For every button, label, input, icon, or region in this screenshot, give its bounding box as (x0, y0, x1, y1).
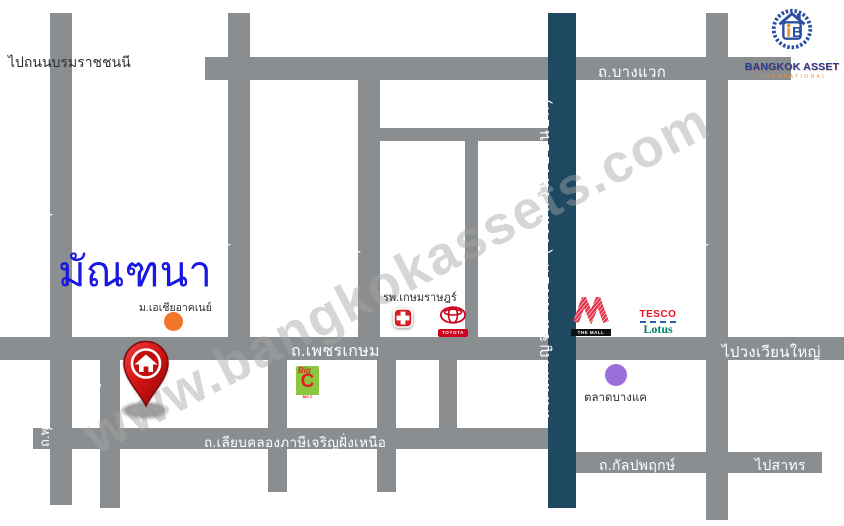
label-phutthasakhon: ถ.พุทธสาคร (37, 380, 53, 447)
label-to-wongwian-yai: ไปวงเวียนใหญ่ (722, 340, 821, 364)
lotus-label: Lotus (638, 323, 678, 335)
company-name: BANGKOK ASSET (744, 61, 840, 73)
university-marker (164, 312, 183, 331)
label-bangwaek: ถ.บางแวก (598, 60, 666, 84)
toyota-emblem-icon (439, 306, 467, 324)
road-sai1 (706, 13, 728, 520)
label-sai4: ถ.พุทธมณฑลสาย 4 (37, 123, 53, 233)
label-sai1: ถ.พุทธมณฑลสาย 1 (693, 153, 709, 263)
svg-text:B: B (792, 25, 802, 41)
company-logo: B BANGKOK ASSET INTERNATIONAL (744, 6, 840, 80)
road-soi-a (268, 360, 287, 492)
road-soi-c (439, 360, 457, 448)
location-map: www.bangkokassets.com ถ.บางแวก ถ.เพชรเกษ… (0, 0, 844, 526)
project-name: มัณฑนา (58, 248, 212, 296)
toyota-label: TOYOTA (438, 329, 468, 337)
label-liap-khlong: ถ.เลียบคลองภาษีเจริญฝั่งเหนือ (204, 431, 386, 453)
label-kanchanaphisek: ถนนกาญจนาภิเษก (วงแหวนรอบนอก) (536, 96, 553, 419)
road-soi-b (377, 360, 396, 492)
label-market: ตลาดบางแค (584, 389, 647, 407)
label-soi-macharoen: ซ.มาเจริญ 81 (91, 369, 103, 428)
big-c-strip-label: BIG C (296, 395, 319, 400)
toyota-logo: TOYOTA (438, 306, 468, 337)
the-mall-logo: THE MALL (571, 297, 611, 336)
the-mall-label: THE MALL (571, 329, 611, 336)
hospital-cross-icon (393, 308, 413, 333)
road-branch-north (368, 128, 550, 141)
label-hospital: รพ.เกษมราษฎร์ (383, 288, 457, 306)
company-emblem-icon: B (765, 6, 819, 56)
the-mall-m-icon (572, 297, 610, 324)
label-to-sathorn: ไปสาทร (755, 455, 806, 477)
tesco-lotus-logo: TESCO Lotus (638, 305, 678, 335)
market-marker (605, 364, 627, 386)
location-pin-icon (115, 340, 177, 425)
company-subtitle: INTERNATIONAL (744, 74, 840, 80)
label-to-borommaratchachonnani: ไปถนนบรมราชชนนี (8, 52, 131, 74)
label-sai2: ถ.พุทธมณฑลสาย 2 (345, 160, 361, 270)
big-c-logo: Big C BIG C (296, 366, 319, 399)
label-kanlapaphruek: ถ.กัลปพฤกษ์ (599, 455, 675, 477)
big-c-c-label: C (296, 372, 319, 392)
road-sai3 (228, 13, 250, 360)
label-phetkasem: ถ.เพชรเกษม (291, 339, 380, 364)
road-bangwaek (205, 57, 791, 80)
label-sai3: ถ.พุทธมณฑลสาย 3 (215, 153, 231, 263)
